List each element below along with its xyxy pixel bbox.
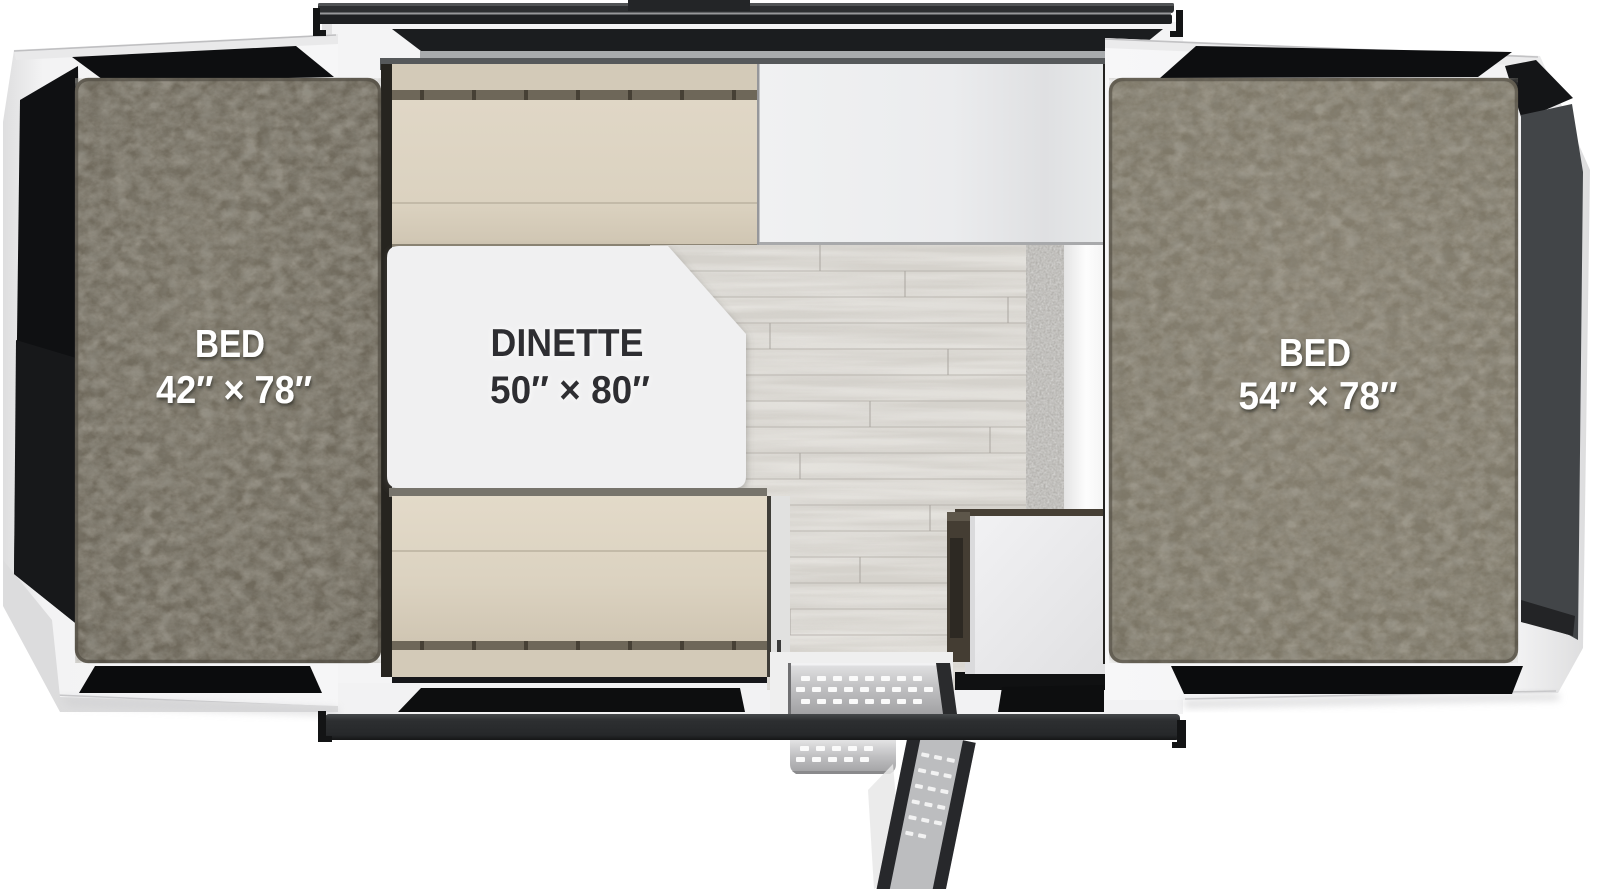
- svg-text:50″ × 80″: 50″ × 80″: [490, 369, 650, 412]
- svg-text:42″ × 78″: 42″ × 78″: [156, 369, 312, 412]
- svg-text:BED: BED: [1279, 332, 1351, 375]
- svg-text:DINETTE: DINETTE: [491, 322, 644, 365]
- svg-text:BED: BED: [195, 323, 265, 366]
- svg-text:54″ × 78″: 54″ × 78″: [1239, 375, 1398, 418]
